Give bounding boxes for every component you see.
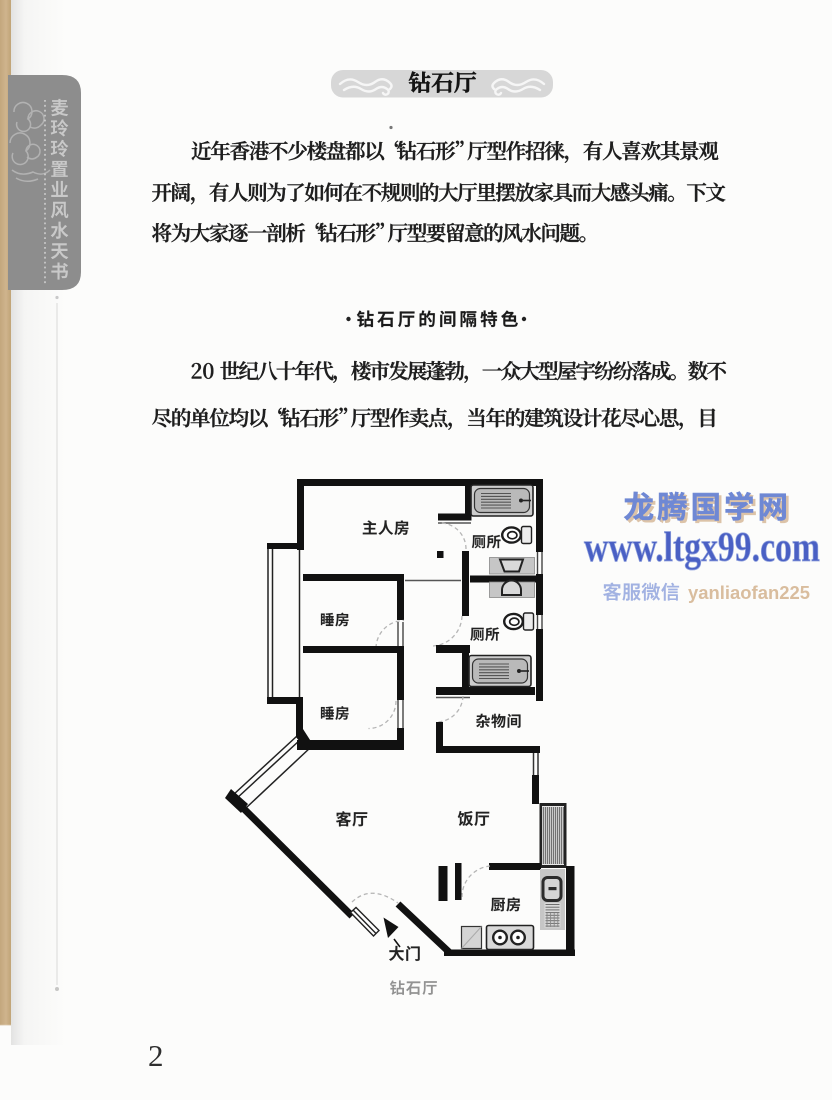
svg-text:yanliaofan225: yanliaofan225 <box>688 582 810 603</box>
svg-text:www.ltgx99.com: www.ltgx99.com <box>584 525 820 571</box>
svg-text:2: 2 <box>148 1038 164 1073</box>
